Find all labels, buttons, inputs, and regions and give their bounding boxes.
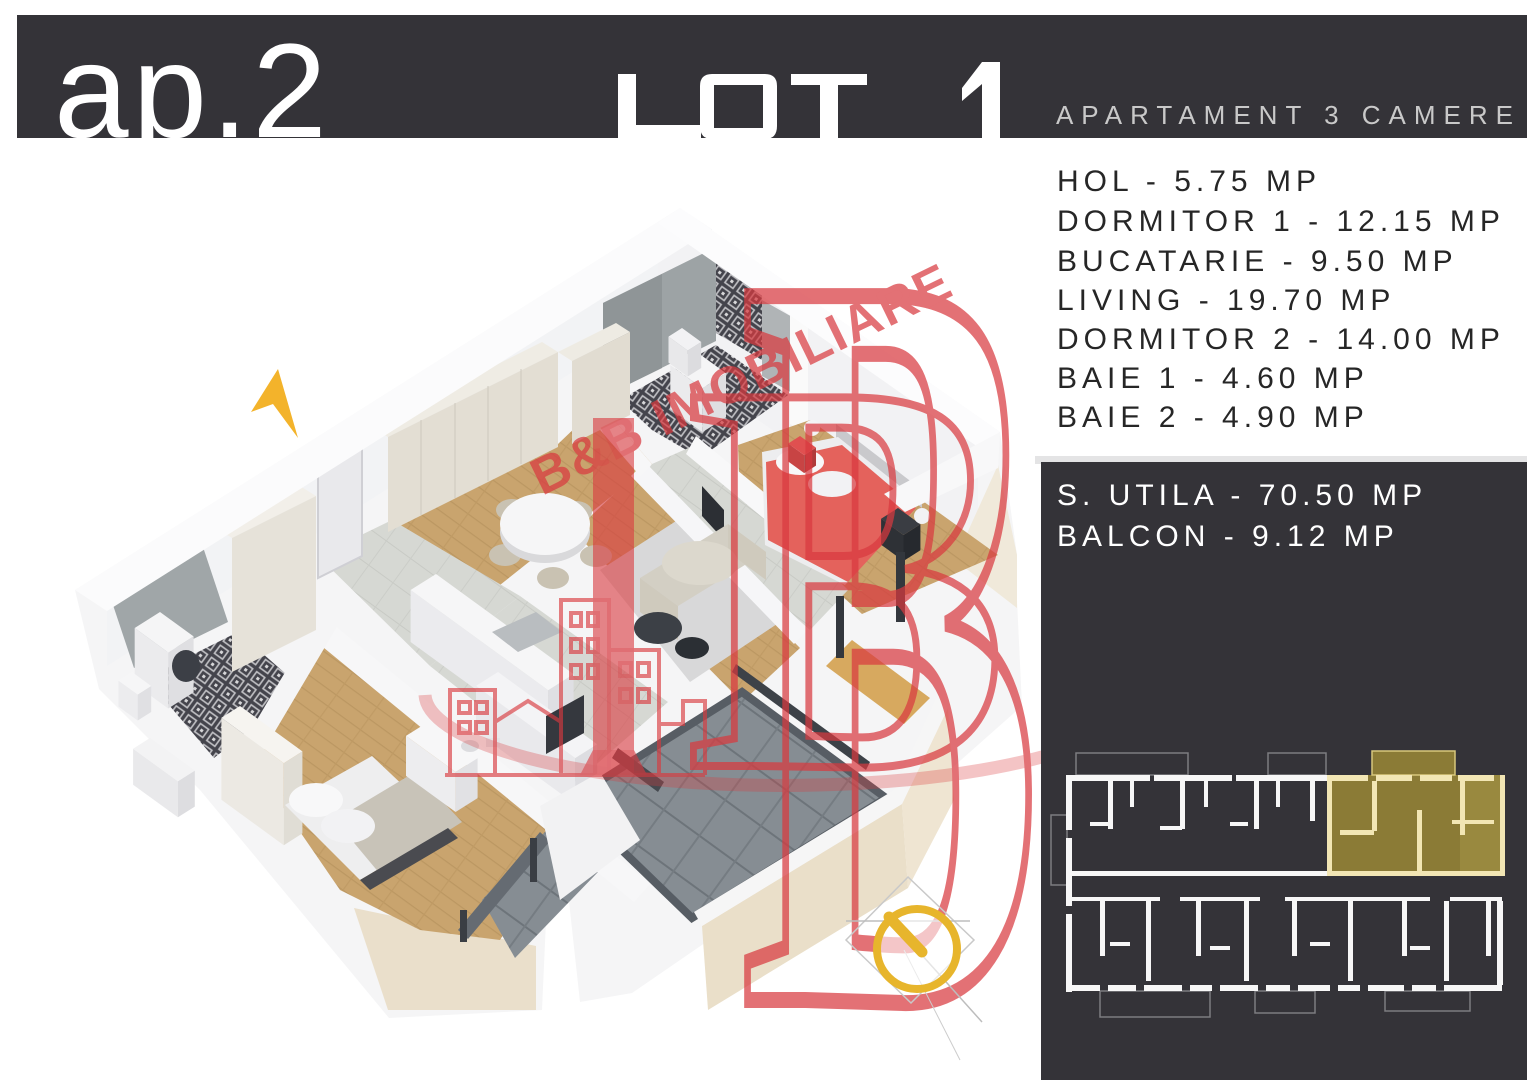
svg-text:BALCON - 9.12 MP: BALCON - 9.12 MP xyxy=(1057,520,1399,553)
svg-text:DORMITOR 2 - 14.00 MP: DORMITOR 2 - 14.00 MP xyxy=(1057,323,1505,356)
svg-text:DORMITOR 1 - 12.15 MP: DORMITOR 1 - 12.15 MP xyxy=(1057,205,1505,238)
svg-text:ap.2: ap.2 xyxy=(54,17,331,166)
svg-text:LIVING - 19.70 MP: LIVING - 19.70 MP xyxy=(1057,284,1395,317)
svg-text:BUCATARIE - 9.50 MP: BUCATARIE - 9.50 MP xyxy=(1057,245,1458,278)
svg-text:S. UTILA - 70.50 MP: S. UTILA - 70.50 MP xyxy=(1057,479,1427,512)
svg-text:BAIE 2 - 4.90 MP: BAIE 2 - 4.90 MP xyxy=(1057,401,1369,434)
svg-text:BAIE 1 - 4.60 MP: BAIE 1 - 4.60 MP xyxy=(1057,362,1369,395)
svg-text:APARTAMENT 3 CAMERE: APARTAMENT 3 CAMERE xyxy=(1056,100,1521,130)
svg-text:HOL - 5.75 MP: HOL - 5.75 MP xyxy=(1057,165,1321,198)
